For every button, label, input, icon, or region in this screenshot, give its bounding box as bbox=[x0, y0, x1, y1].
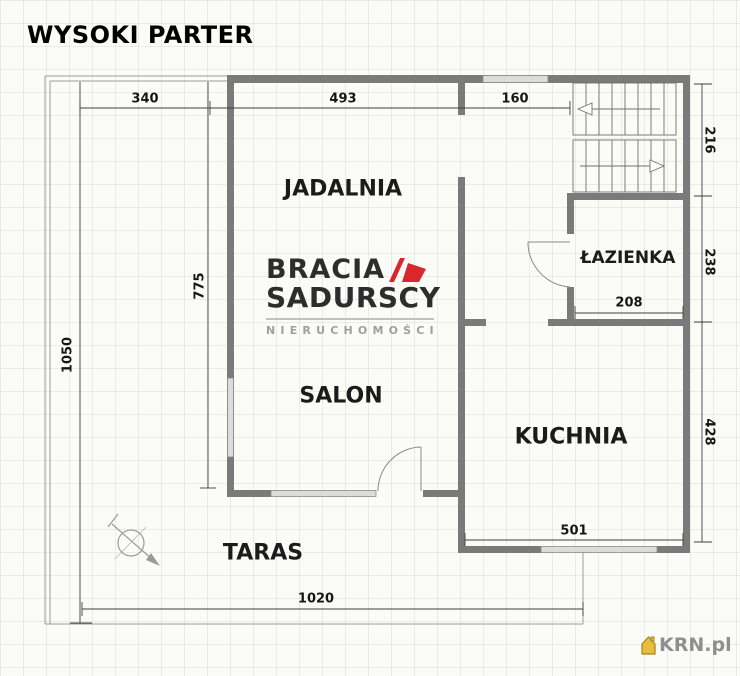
dim-jadalnia-width: 493 bbox=[329, 92, 356, 107]
watermark-logo: BRACIA SADURSCY NIERUCHOMOŚCI bbox=[266, 256, 438, 337]
page-title: WYSOKI PARTER bbox=[27, 21, 254, 49]
watermark-brand-line3: NIERUCHOMOŚCI bbox=[266, 324, 438, 337]
dim-bathroom-width: 208 bbox=[615, 296, 642, 311]
dim-stairs-height: 216 bbox=[702, 126, 717, 153]
dim-terrace-width: 1020 bbox=[298, 592, 334, 607]
krn-brand-text: KRN.pl bbox=[659, 634, 732, 656]
dim-interior-height: 775 bbox=[193, 272, 208, 299]
dimension-lines bbox=[70, 82, 712, 623]
watermark-divider bbox=[266, 318, 434, 320]
terrace-outline bbox=[45, 76, 583, 624]
watermark-brand-line2: SADURSCY bbox=[266, 283, 438, 312]
dim-hall-width: 160 bbox=[501, 92, 528, 107]
room-label-jadalnia: JADALNIA bbox=[284, 177, 402, 202]
room-label-lazienka: ŁAZIENKA bbox=[581, 248, 676, 268]
dim-kitchen-width: 501 bbox=[560, 524, 587, 539]
dim-total-height: 1050 bbox=[61, 337, 76, 373]
floorplan-canvas bbox=[0, 0, 740, 676]
dim-kitchen-height: 428 bbox=[702, 418, 717, 445]
dim-bathroom-height: 238 bbox=[702, 248, 717, 275]
watermark-logo-mark-icon bbox=[389, 256, 427, 282]
dim-terrace-left-width: 340 bbox=[131, 92, 158, 107]
room-label-taras: TARAS bbox=[223, 541, 303, 566]
north-arrow-icon bbox=[108, 514, 160, 566]
krn-watermark: KRN.pl bbox=[640, 634, 732, 656]
staircase bbox=[573, 83, 676, 192]
room-label-kuchnia: KUCHNIA bbox=[515, 425, 628, 450]
room-label-salon: SALON bbox=[299, 384, 382, 409]
floorplan-page: WYSOKI PARTER JADALNIA SALON KUCHNIA ŁAZ… bbox=[0, 0, 740, 676]
house-icon bbox=[640, 634, 657, 656]
watermark-brand-line1: BRACIA bbox=[266, 256, 385, 283]
